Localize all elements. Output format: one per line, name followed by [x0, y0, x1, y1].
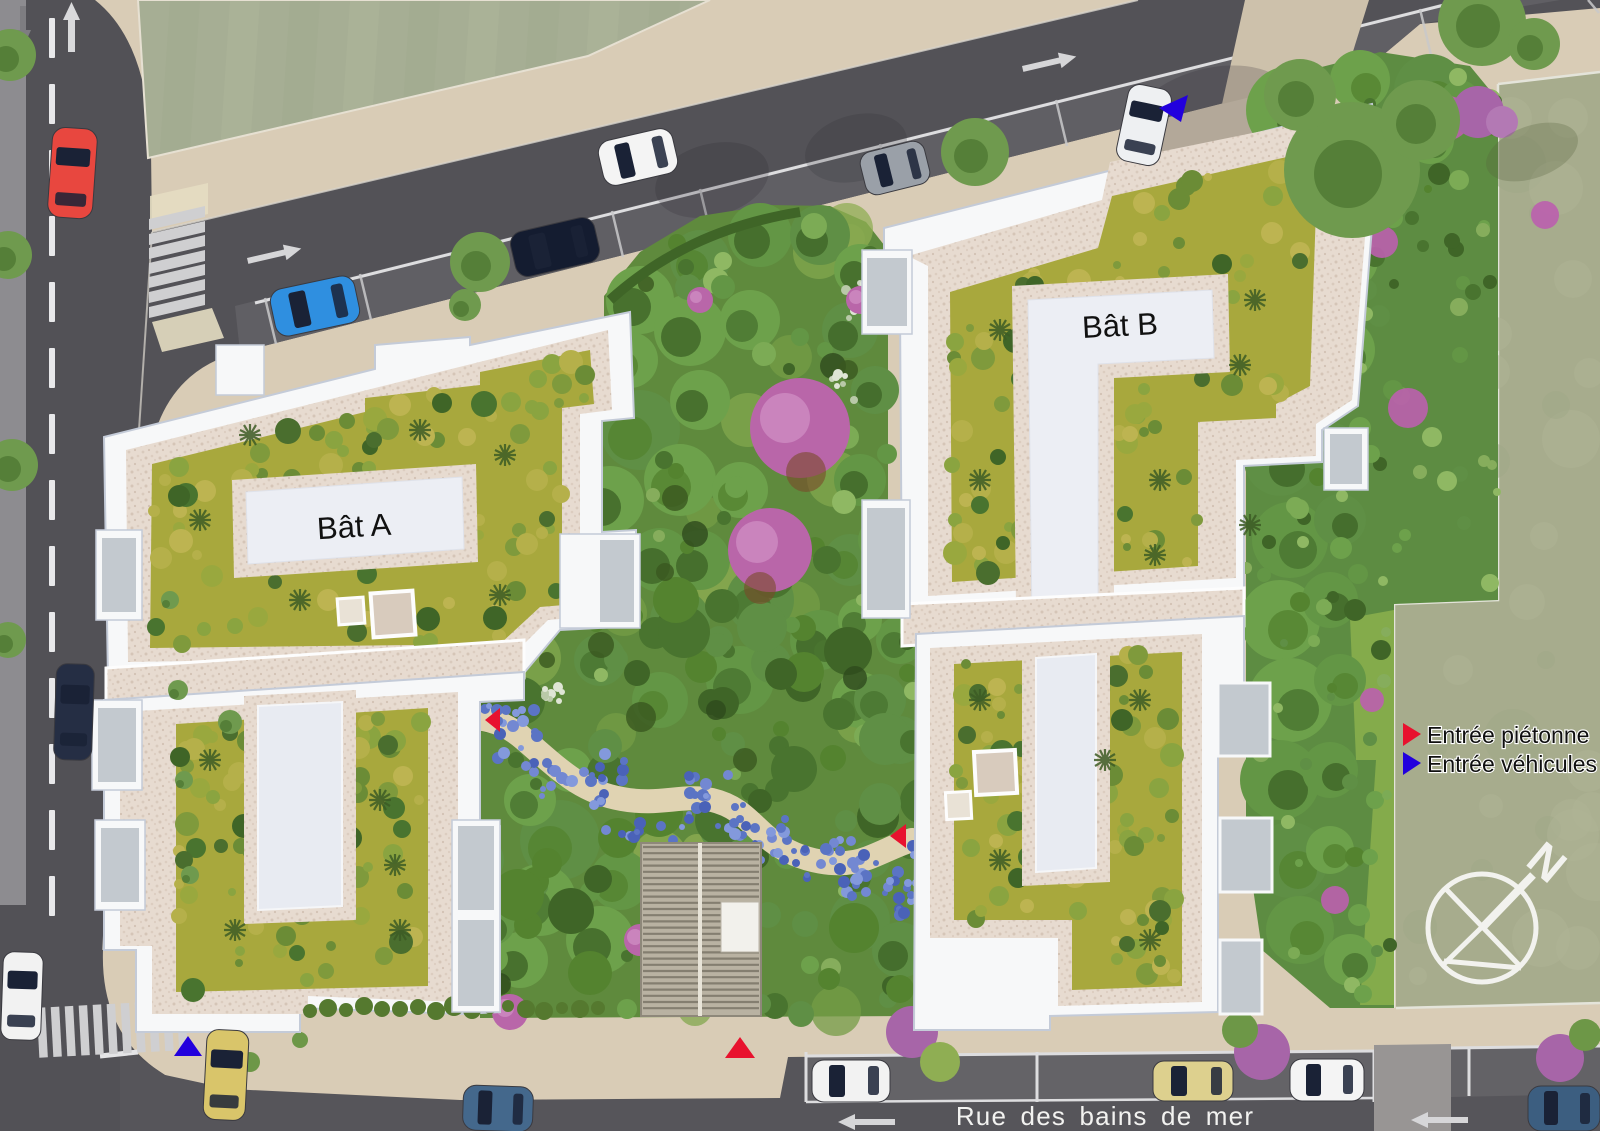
svg-text:Bât B: Bât B	[1081, 306, 1159, 345]
svg-text:Entrée véhicules: Entrée véhicules	[1427, 751, 1597, 777]
svg-text:Rue des bains de mer: Rue des bains de mer	[956, 1101, 1254, 1131]
svg-text:Bât A: Bât A	[316, 507, 392, 546]
svg-text:Entrée piétonne: Entrée piétonne	[1427, 722, 1589, 748]
